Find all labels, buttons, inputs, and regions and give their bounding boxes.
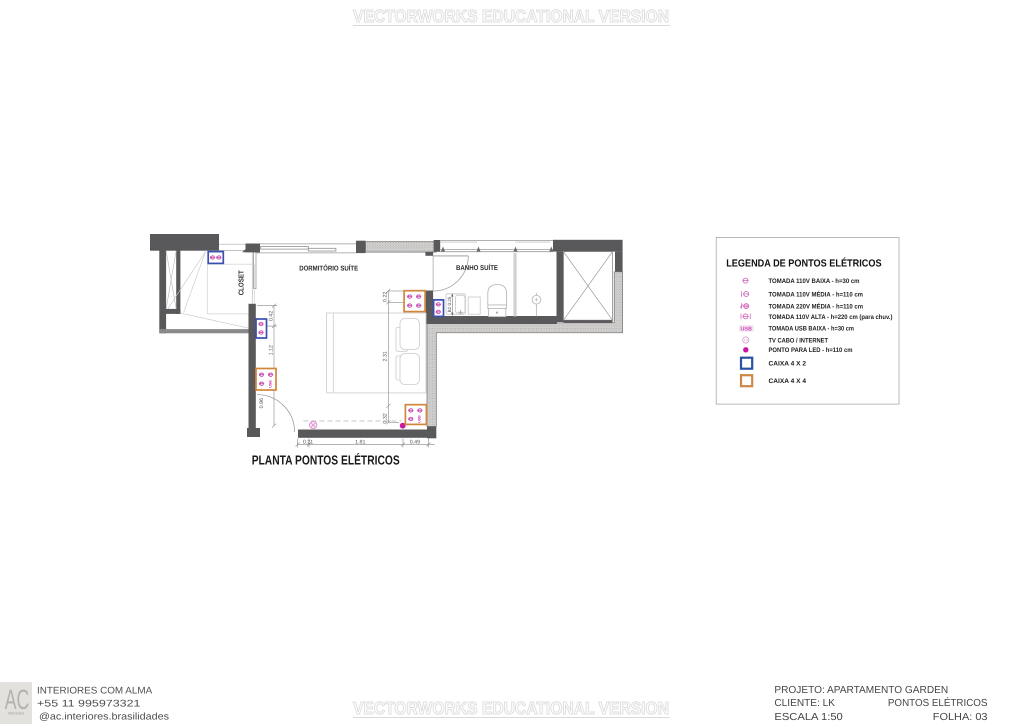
svg-text:0.96: 0.96: [259, 398, 265, 408]
svg-text:TV: TV: [744, 339, 749, 343]
svg-text:Interiores: Interiores: [8, 711, 25, 716]
svg-text:BANHO SUÍTE: BANHO SUÍTE: [456, 263, 498, 272]
svg-text:PONTO PARA LED - h=110 cm: PONTO PARA LED - h=110 cm: [769, 347, 853, 354]
svg-text:PLANTA PONTOS ELÉTRICOS: PLANTA PONTOS ELÉTRICOS: [252, 453, 400, 468]
svg-text:USB: USB: [741, 327, 752, 333]
svg-text:2.31: 2.31: [383, 351, 389, 361]
svg-text:0.49: 0.49: [410, 439, 420, 445]
svg-text:1.12: 1.12: [268, 345, 274, 355]
svg-text:0,32: 0,32: [383, 413, 389, 423]
svg-text:0.21: 0.21: [303, 439, 313, 445]
svg-text:USB: USB: [418, 415, 422, 423]
svg-text:TOMADA 220V MÉDIA - h=110 cm: TOMADA 220V MÉDIA - h=110 cm: [769, 303, 864, 311]
svg-text:DORMITÓRIO SUÍTE: DORMITÓRIO SUÍTE: [299, 263, 358, 272]
svg-text:PROJETO: APARTAMENTO GARDEN: PROJETO: APARTAMENTO GARDEN: [774, 685, 948, 696]
svg-text:TV CABO / INTERNET: TV CABO / INTERNET: [769, 337, 829, 344]
svg-text:0.42: 0.42: [268, 311, 274, 321]
svg-text:ESCALA 1:50: ESCALA 1:50: [774, 712, 843, 723]
svg-text:B2 0.25: B2 0.25: [447, 296, 452, 312]
svg-text:VECTORWORKS EDUCATIONAL VERSIO: VECTORWORKS EDUCATIONAL VERSION: [353, 698, 669, 718]
svg-text:TOMADA USB BAIXA - h=30 cm: TOMADA USB BAIXA - h=30 cm: [769, 326, 855, 333]
svg-text:LEGENDA DE PONTOS ELÉTRICOS: LEGENDA DE PONTOS ELÉTRICOS: [726, 256, 882, 269]
svg-text:TOMADA 110V BAIXA - h=30 cm: TOMADA 110V BAIXA - h=30 cm: [769, 278, 860, 285]
svg-text:FOLHA: 03: FOLHA: 03: [933, 712, 988, 723]
svg-text:CAIXA 4 X 2: CAIXA 4 X 2: [769, 361, 807, 368]
svg-text:CLIENTE: LK: CLIENTE: LK: [774, 698, 835, 709]
svg-text:CAIXA 4 X 4: CAIXA 4 X 4: [769, 378, 807, 385]
svg-text:TOMADA 110V ALTA - h=220 cm (p: TOMADA 110V ALTA - h=220 cm (para chuv.): [769, 314, 893, 321]
svg-text:INTERIORES COM ALMA: INTERIORES COM ALMA: [37, 686, 153, 697]
svg-text:0.22: 0.22: [383, 292, 389, 302]
svg-text:+55 11 995973321: +55 11 995973321: [37, 698, 141, 709]
svg-text:USB: USB: [269, 380, 273, 388]
svg-text:CLOSET: CLOSET: [237, 270, 246, 296]
svg-text:VECTORWORKS EDUCATIONAL VERSIO: VECTORWORKS EDUCATIONAL VERSION: [353, 6, 669, 26]
svg-text:1.81: 1.81: [355, 439, 365, 445]
svg-text:PONTOS ELÉTRICOS: PONTOS ELÉTRICOS: [888, 697, 988, 709]
svg-text:TOMADA 110V MÉDIA - h=110 cm: TOMADA 110V MÉDIA - h=110 cm: [769, 290, 864, 298]
svg-text:@ac.interiores.brasilidades: @ac.interiores.brasilidades: [39, 712, 169, 723]
